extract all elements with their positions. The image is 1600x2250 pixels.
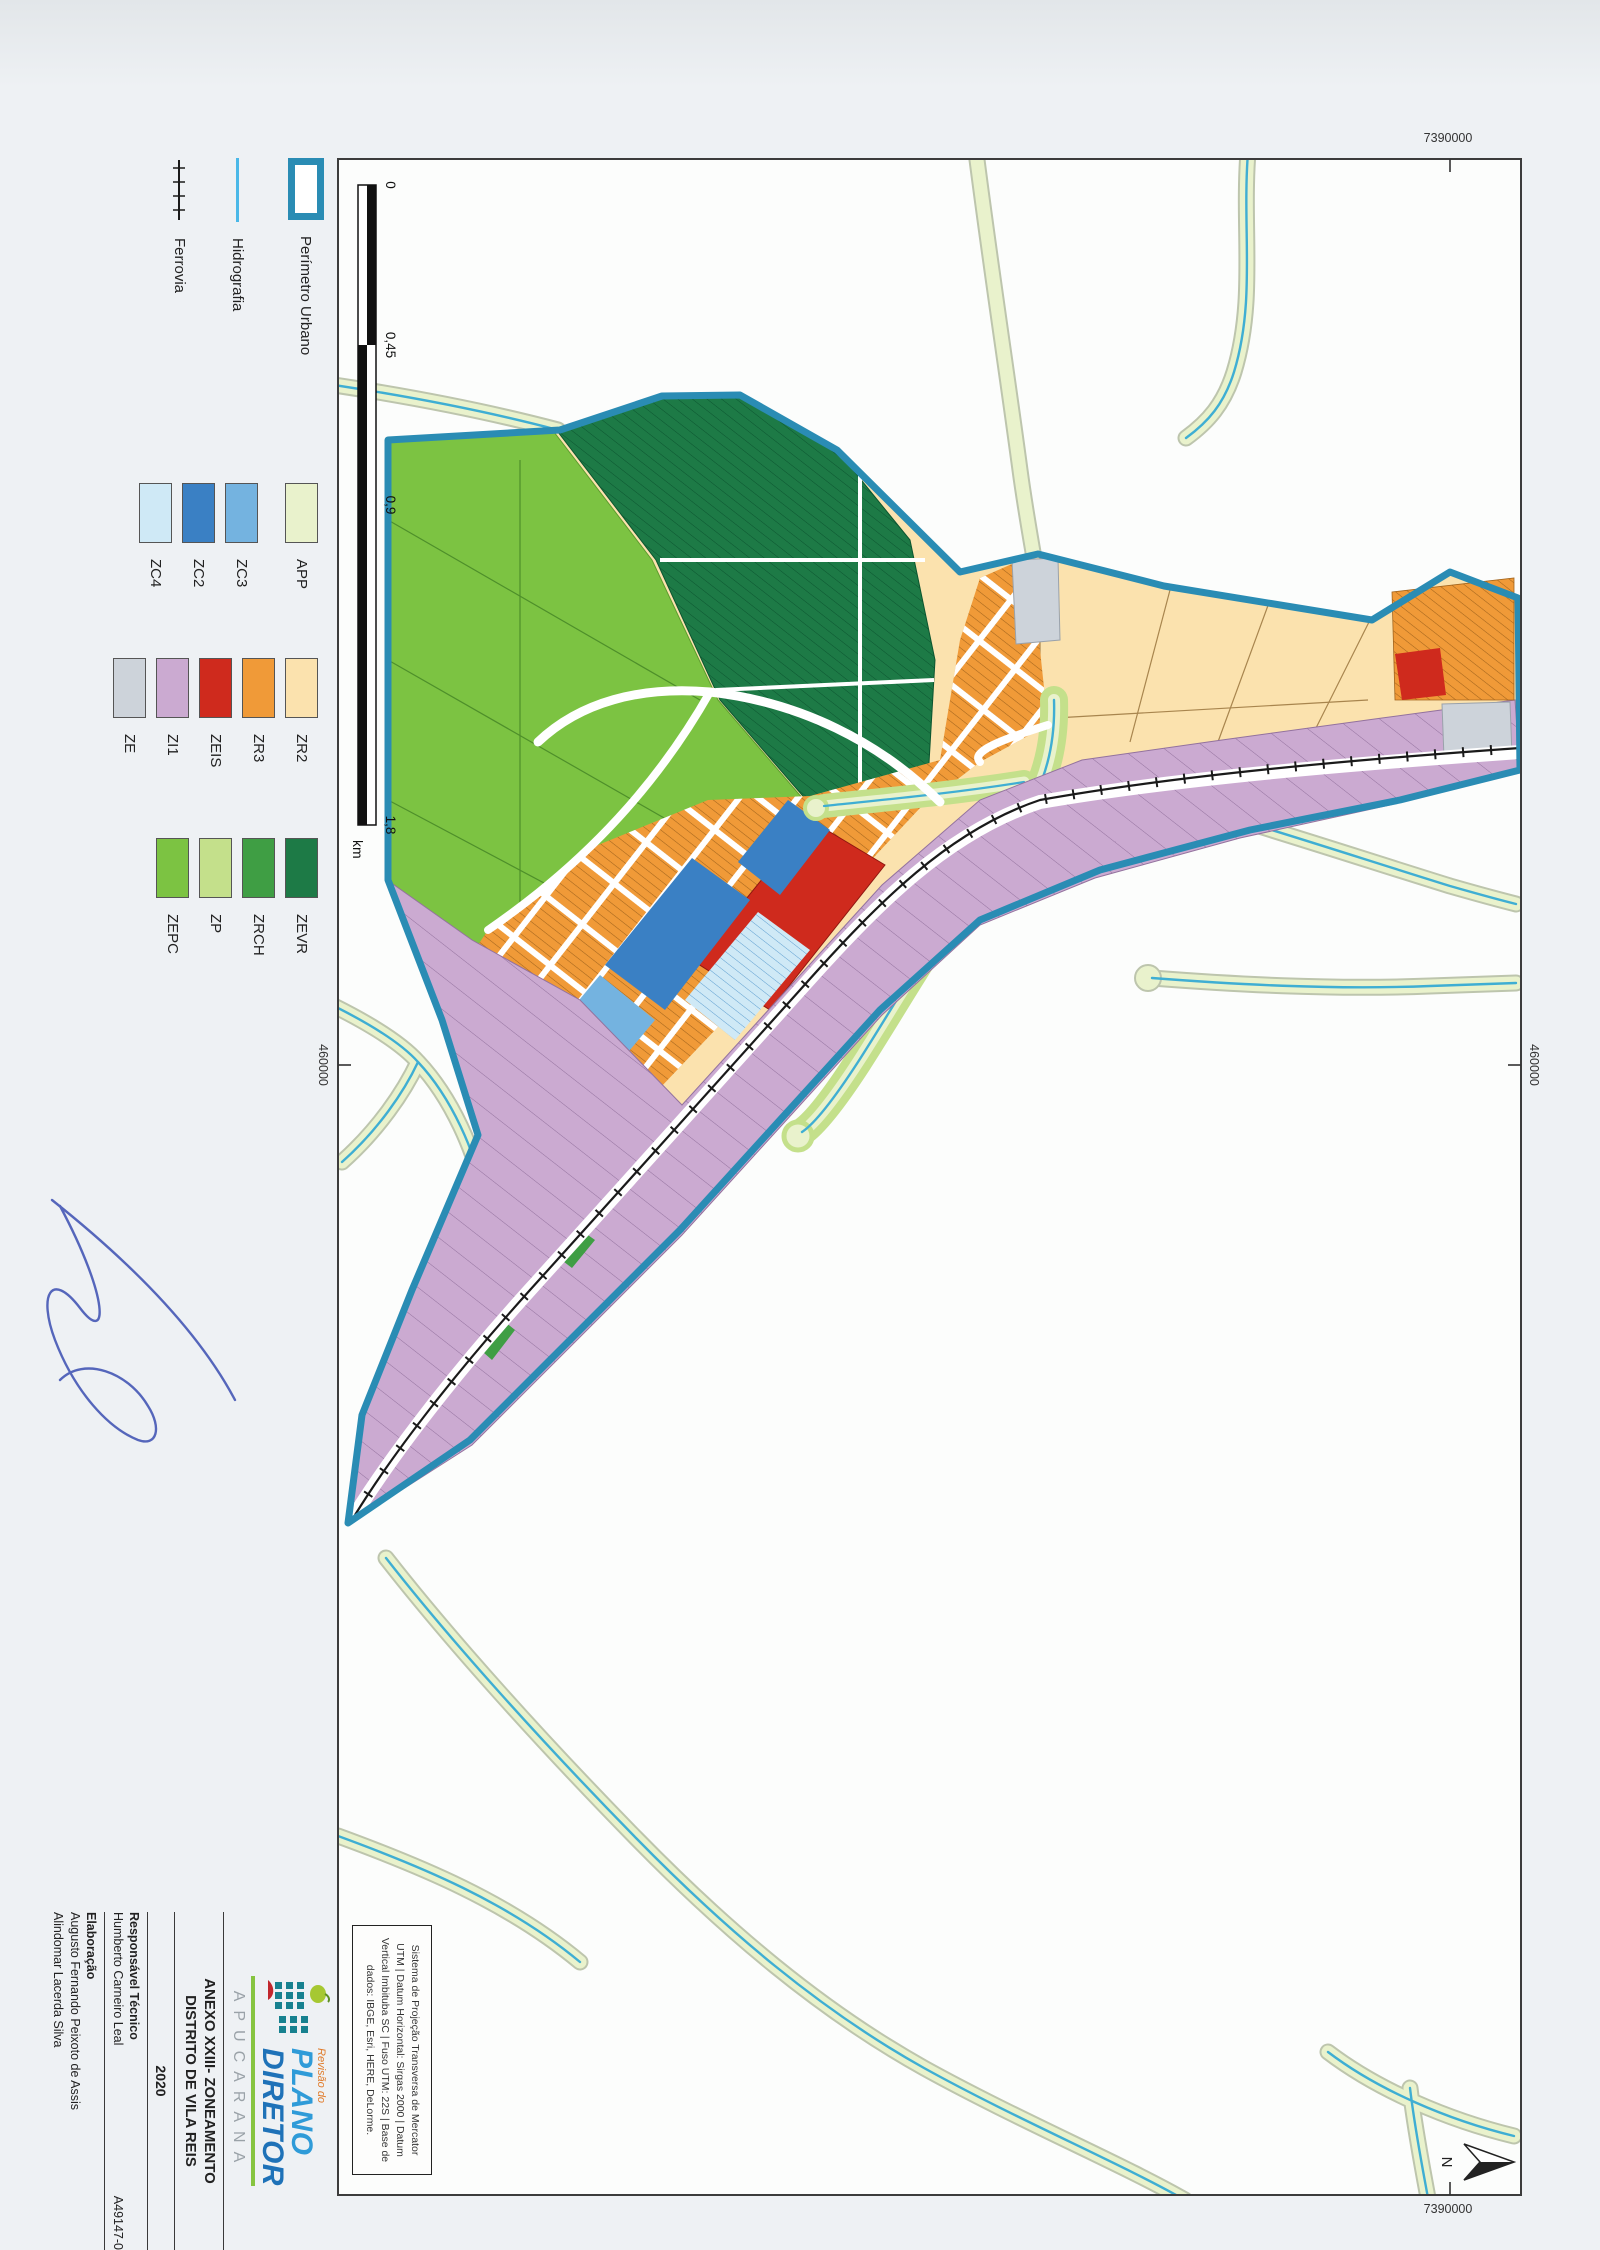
elaboration-name: Augusto Fernando Peixoto de Assis	[67, 1912, 83, 2250]
zone-code: ZC3	[233, 559, 250, 587]
projection-line: dados: IBGE, Esri, HERE, DeLorme.	[362, 1926, 377, 2174]
elaboration-label: Elaboração	[83, 1912, 99, 2250]
scale-unit: km	[350, 840, 366, 859]
divider	[104, 1912, 105, 2250]
zone-ze-gray	[1012, 558, 1060, 644]
zone-code: ZP	[207, 914, 224, 933]
zone-swatch	[199, 838, 232, 898]
legend-zone-zr2: ZR2	[285, 658, 318, 762]
sheet-code: A49147-0	[110, 2196, 126, 2250]
zone-code: ZR3	[250, 734, 267, 762]
legend-label: Hidrografia	[229, 238, 246, 311]
legend-label: Perímetro Urbano	[298, 236, 315, 355]
legend-zone-zc3: ZC3	[225, 483, 258, 587]
scale-045: 0,45	[383, 332, 398, 358]
projection-line: Sistema de Projeção Transversa de Mercat…	[407, 1926, 422, 2174]
projection-line: UTM | Datum Horizontal: Sirgas 2000 | Da…	[392, 1926, 407, 2174]
responsible-label: Responsável Técnico	[126, 1912, 142, 2250]
zone-swatch	[113, 658, 146, 718]
legend-zone-zc4: ZC4	[139, 483, 172, 587]
signature	[47, 1200, 235, 1441]
city-name: APUCARANA	[229, 1912, 247, 2250]
legend-zone-zevr: ZEVR	[285, 838, 318, 954]
projection-line: Vertical Imbituba SC | Fuso UTM: 22S | B…	[377, 1926, 392, 2174]
logo-underline	[251, 1976, 255, 2186]
legend-item-hidrografia: Hidrografia	[229, 158, 246, 311]
plano-diretor-logo: Revisão do PLANO DIRETOR	[258, 1912, 332, 2250]
grid-label-northing-left: 7390000	[1424, 131, 1473, 145]
legend-label: Ferrovia	[171, 238, 188, 293]
legend-zone-zrch: ZRCH	[242, 838, 275, 956]
grid-label-easting-top: 460000	[1527, 1044, 1541, 1086]
zone-swatch	[242, 838, 275, 898]
legend-zone-zi1: ZI1	[156, 658, 189, 756]
landscape-sheet: 7390000 7390000 460000 460000 0 0,45 0,9…	[0, 0, 1600, 2250]
legend-item-perimetro: Perímetro Urbano	[288, 158, 324, 355]
zone-code: ZEPC	[164, 914, 181, 954]
scale-0: 0	[383, 181, 398, 189]
divider	[223, 1912, 224, 2250]
projection-note-box: Sistema de Projeção Transversa de Mercat…	[352, 1925, 432, 2175]
logo-plano: PLANO	[287, 2048, 316, 2186]
apple-icon	[310, 1985, 326, 2003]
zone-code: ZC2	[190, 559, 207, 587]
perimeter-swatch	[288, 158, 324, 220]
zone-swatch	[182, 483, 215, 543]
legend-zone-ze: ZE	[113, 658, 146, 753]
legend-zone-app: APP	[285, 483, 318, 589]
zone-code: ZE	[121, 734, 138, 753]
legend-zone-zepc: ZEPC	[156, 838, 189, 954]
scale-09: 0,9	[383, 496, 398, 515]
elaboration-name: Alindomar Lacerda Silva	[50, 1912, 66, 2250]
divider	[175, 1912, 176, 2250]
north-arrow-label: N	[1438, 2157, 1455, 2168]
zone-code: ZRCH	[250, 914, 267, 956]
zone-swatch	[285, 658, 318, 718]
divider	[148, 1912, 149, 2250]
legend-item-ferrovia: Ferrovia	[171, 158, 188, 293]
zone-swatch	[139, 483, 172, 543]
zone-swatch	[242, 658, 275, 718]
building-blocks-icon	[275, 1982, 308, 2033]
zone-swatch	[285, 483, 318, 543]
zone-code: ZEIS	[207, 734, 224, 767]
grid-label-northing-right: 7390000	[1424, 2202, 1473, 2216]
zone-zeis-arm	[1395, 648, 1446, 700]
zone-swatch	[285, 838, 318, 898]
zone-swatch	[156, 658, 189, 718]
red-mark-icon	[268, 1980, 273, 2000]
zone-swatch	[225, 483, 258, 543]
zone-swatch	[156, 838, 189, 898]
year: 2020	[154, 1912, 170, 2250]
legend-zone-zr3: ZR3	[242, 658, 275, 762]
zone-code: ZR2	[293, 734, 310, 762]
railway-swatch	[172, 158, 188, 222]
title-block: Revisão do PLANO DIRETOR APUCARANA ANEXO…	[50, 1912, 332, 2250]
zone-code: ZC4	[147, 559, 164, 587]
legend: Perímetro Urbano Hidrografia Ferrovia AP…	[80, 150, 330, 1130]
scanned-map-sheet: 7390000 7390000 460000 460000 0 0,45 0,9…	[0, 0, 1600, 2250]
annex-title-line2: DISTRITO DE VILA REIS	[181, 1912, 200, 2250]
hydrography-swatch	[236, 158, 239, 222]
legend-zone-zeis: ZEIS	[199, 658, 232, 767]
logo-diretor: DIRETOR	[258, 2048, 287, 2186]
logo-icon	[258, 1976, 330, 2042]
zone-code: ZEVR	[293, 914, 310, 954]
zone-code: ZI1	[164, 734, 181, 756]
legend-zone-zc2: ZC2	[182, 483, 215, 587]
zone-code: APP	[293, 559, 310, 589]
elaboration-section: Elaboração Augusto Fernando Peixoto de A…	[50, 1912, 99, 2250]
annex-title-line1: ANEXO XXIII- ZONEAMENTO	[199, 1912, 218, 2250]
responsible-section: Responsável Técnico Humberto Carneiro Le…	[110, 1912, 143, 2250]
zone-swatch	[199, 658, 232, 718]
scale-18: 1,8	[383, 816, 398, 835]
legend-zone-zp: ZP	[199, 838, 232, 933]
